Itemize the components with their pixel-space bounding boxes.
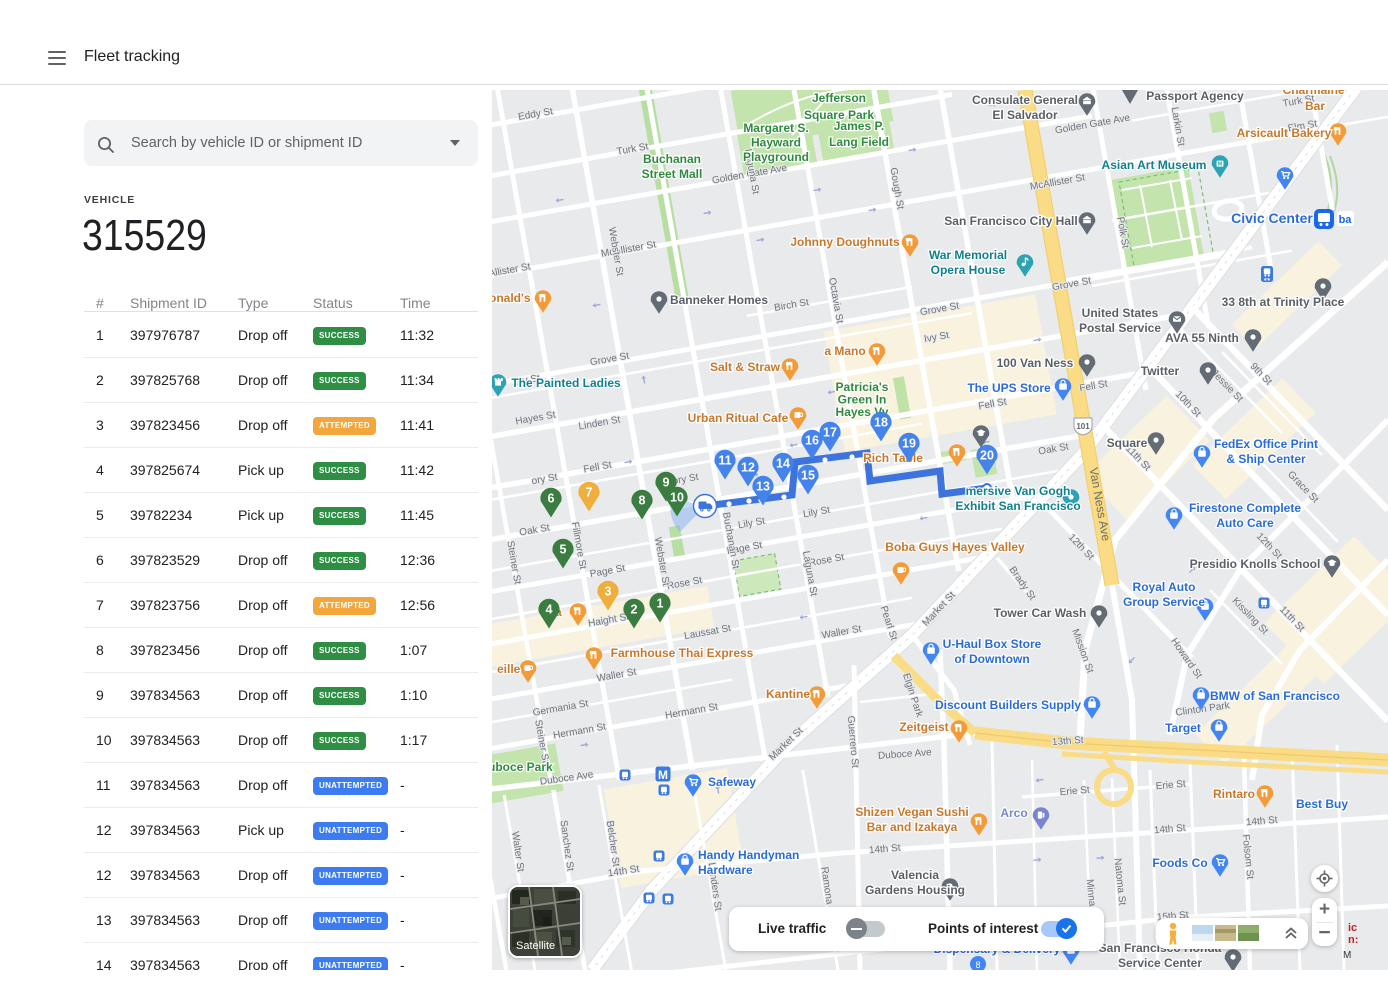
svg-text:20: 20: [980, 448, 994, 462]
svg-text:Urban Ritual Cafe: Urban Ritual Cafe: [688, 411, 789, 425]
svg-text:uboce Park: uboce Park: [492, 760, 553, 774]
svg-text:U-Haul Box Storeof Downtown: U-Haul Box Storeof Downtown: [943, 637, 1042, 666]
svg-text:1: 1: [657, 596, 664, 610]
svg-text:101: 101: [1076, 422, 1090, 431]
svg-text:Margaret S.HaywardPlayground: Margaret S.HaywardPlayground: [743, 121, 809, 164]
svg-text:eille: eille: [497, 662, 521, 676]
svg-text:18: 18: [874, 415, 888, 429]
svg-text:Rintaro: Rintaro: [1213, 787, 1255, 801]
svg-text:6: 6: [548, 491, 555, 505]
svg-text:Presidio Knolls School: Presidio Knolls School: [1190, 557, 1321, 571]
svg-text:15: 15: [801, 468, 815, 482]
svg-text:3: 3: [605, 584, 612, 598]
svg-text:8: 8: [639, 493, 646, 507]
svg-text:Johnny Doughnuts: Johnny Doughnuts: [790, 235, 900, 249]
svg-text:M: M: [658, 768, 668, 782]
svg-text:4: 4: [546, 602, 553, 616]
svg-text:Square: Square: [1107, 436, 1148, 450]
svg-text:100 Van Ness: 100 Van Ness: [997, 356, 1074, 370]
svg-text:16: 16: [805, 433, 819, 447]
svg-text:War MemorialOpera House: War MemorialOpera House: [929, 248, 1007, 277]
svg-text:9: 9: [663, 475, 670, 489]
svg-text:a Mano: a Mano: [824, 344, 865, 358]
svg-text:Best Buy: Best Buy: [1296, 797, 1348, 811]
svg-text:Discount Builders Supply: Discount Builders Supply: [935, 698, 1081, 712]
svg-text:2: 2: [631, 602, 638, 616]
svg-text:Banneker Homes: Banneker Homes: [670, 293, 768, 307]
svg-text:Farmhouse Thai Express: Farmhouse Thai Express: [611, 646, 754, 660]
svg-text:12: 12: [741, 460, 755, 474]
svg-text:13: 13: [756, 479, 770, 493]
svg-text:San Francisco City Hall: San Francisco City Hall: [944, 214, 1077, 228]
svg-text:10: 10: [670, 490, 684, 504]
svg-text:14: 14: [776, 456, 790, 470]
svg-text:Kantine: Kantine: [766, 687, 810, 701]
svg-text:M: M: [1218, 162, 1223, 168]
svg-text:Safeway: Safeway: [708, 775, 756, 789]
svg-text:The Painted Ladies: The Painted Ladies: [511, 376, 621, 390]
svg-text:Boba Guys Hayes Valley: Boba Guys Hayes Valley: [885, 540, 1025, 554]
svg-text:United StatesPostal Service: United StatesPostal Service: [1079, 306, 1161, 335]
svg-text:Zeitgeist: Zeitgeist: [899, 720, 948, 734]
svg-text:7: 7: [586, 485, 593, 499]
svg-text:The UPS Store: The UPS Store: [967, 381, 1051, 395]
svg-text:Royal AutoGroup Service: Royal AutoGroup Service: [1123, 580, 1205, 609]
svg-text:Target: Target: [1165, 721, 1201, 735]
svg-text:33 8th at Trinity Place: 33 8th at Trinity Place: [1222, 295, 1345, 309]
svg-text:ba: ba: [1339, 214, 1353, 226]
svg-text:13th St: 13th St: [1052, 735, 1085, 748]
svg-text:BuchananStreet Mall: BuchananStreet Mall: [642, 152, 703, 181]
svg-text:8: 8: [975, 960, 980, 970]
svg-text:BMW of San Francisco: BMW of San Francisco: [1210, 689, 1340, 703]
svg-text:17: 17: [823, 425, 837, 439]
svg-text:Civic Center: Civic Center: [1231, 210, 1313, 226]
svg-text:19: 19: [902, 436, 916, 450]
svg-text:Twitter: Twitter: [1141, 364, 1180, 378]
svg-text:Arco: Arco: [1000, 806, 1027, 820]
svg-text:Foods Co: Foods Co: [1152, 856, 1207, 870]
svg-text:FedEx Office Print& Ship Cente: FedEx Office Print& Ship Center: [1214, 437, 1318, 466]
svg-text:5: 5: [560, 542, 567, 556]
svg-text:onald's: onald's: [492, 291, 531, 305]
svg-text:AVA 55 Ninth: AVA 55 Ninth: [1165, 331, 1239, 345]
svg-text:Tower Car Wash: Tower Car Wash: [994, 606, 1087, 620]
svg-text:Arsicault Bakery: Arsicault Bakery: [1237, 126, 1332, 140]
svg-text:Shizen Vegan SushiBar and Izak: Shizen Vegan SushiBar and Izakaya: [855, 805, 968, 834]
svg-text:Asian Art Museum: Asian Art Museum: [1102, 158, 1207, 172]
svg-text:Passport Agency: Passport Agency: [1146, 90, 1244, 103]
svg-text:Salt & Straw: Salt & Straw: [710, 360, 781, 374]
svg-text:mersive Van GoghExhibit San Fr: mersive Van GoghExhibit San Francisco: [955, 484, 1080, 513]
svg-text:11: 11: [718, 453, 731, 467]
